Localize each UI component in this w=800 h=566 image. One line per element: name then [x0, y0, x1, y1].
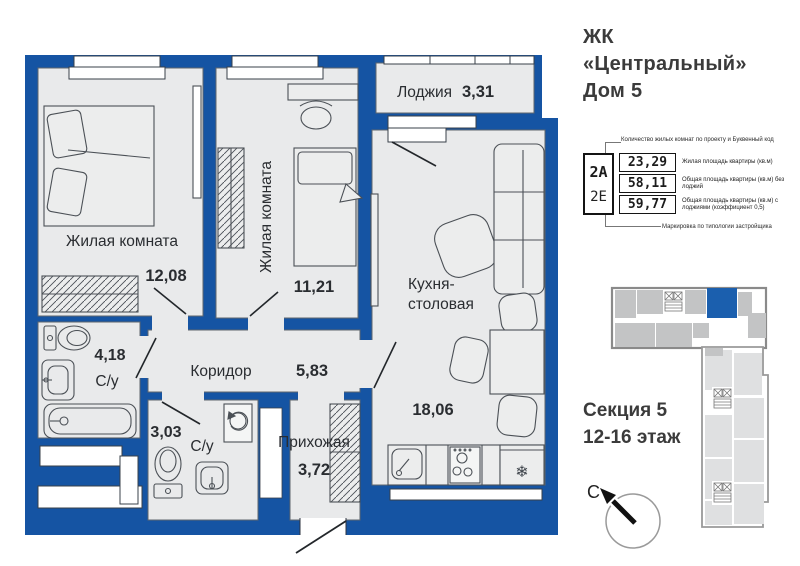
- room-label-bath1-name: С/у: [95, 373, 119, 390]
- double-bed-icon: [44, 106, 154, 226]
- wardrobe-icon: [330, 404, 360, 502]
- title-line-1: ЖК: [583, 24, 795, 51]
- apartment-code-box: 2А 2Е: [583, 153, 614, 215]
- elevator-stairs-icon: [712, 387, 734, 411]
- stove-icon: [450, 447, 480, 483]
- tv-icon: [371, 194, 378, 306]
- window-icon: [74, 56, 160, 67]
- north-arrow-icon: [600, 488, 635, 523]
- apartment-code-secondary: 2Е: [590, 189, 607, 205]
- room-label-hallway-area: 3,72: [298, 461, 330, 479]
- highlighted-apartment: [707, 288, 737, 318]
- chair-icon: [496, 394, 538, 438]
- fridge-icon: ❄: [500, 445, 544, 485]
- elevator-stairs-icon: [712, 481, 734, 505]
- compass: С: [583, 476, 673, 561]
- living-area-value: 23,29: [619, 153, 676, 172]
- washing-machine-icon: [224, 404, 252, 442]
- room-label-bedroom1-name: Жилая комната: [66, 233, 178, 250]
- title-line-3: Дом 5: [583, 78, 795, 105]
- room-label-kitchen-area: 18,06: [412, 401, 453, 419]
- room-label-hallway-name: Прихожая: [278, 434, 350, 451]
- project-title: ЖК «Центральный» Дом 5: [583, 24, 795, 105]
- window-icon: [390, 489, 542, 500]
- spec-annotation-bottom: Маркировка по типологии застройщика: [662, 224, 772, 231]
- balcony-door-icon: [388, 128, 446, 142]
- room-label-bath1-area: 4,18: [94, 347, 125, 364]
- room-label-bedroom2-area: 11,21: [294, 278, 334, 296]
- duct-shaft: [260, 408, 282, 498]
- room-label-bedroom2-name: Жилая комната: [258, 161, 275, 273]
- chair-icon: [498, 292, 539, 335]
- compass-north-label: С: [587, 482, 600, 502]
- apartment-floor-plan: ❄: [0, 0, 575, 566]
- window-icon: [69, 67, 165, 79]
- window-icon: [232, 56, 318, 67]
- room-label-bedroom1-area: 12,08: [145, 267, 186, 285]
- section-line-2: 12-16 этаж: [583, 424, 680, 451]
- wardrobe-icon: [218, 148, 244, 248]
- spec-connector-bottom: [605, 215, 661, 227]
- section-line-1: Секция 5: [583, 397, 680, 424]
- sofa-icon: [494, 144, 544, 294]
- section-lower-unit: [705, 348, 723, 356]
- room-label-kitchen-name-1: Кухня-: [408, 276, 455, 293]
- spec-annotation-top: Количество жилых комнат по проекту и Бук…: [621, 137, 774, 144]
- title-line-2: «Центральный»: [583, 51, 795, 78]
- spec-connector-top: [605, 142, 621, 153]
- room-label-bath2-name: С/у: [190, 438, 214, 455]
- loggia-glazing-icon: [384, 56, 534, 64]
- room-label-corridor-area: 5,83: [296, 362, 328, 380]
- room-corridor: [148, 330, 360, 392]
- window-icon: [40, 446, 122, 466]
- entrance-door-icon: [296, 518, 346, 553]
- room-label-loggia-name: Лоджия: [397, 84, 452, 101]
- balcony-door-icon: [388, 116, 476, 128]
- section-info: Секция 5 12-16 этаж: [583, 397, 680, 451]
- apartment-spec-card: Количество жилых комнат по проекту и Бук…: [583, 137, 796, 245]
- window-icon: [227, 67, 323, 79]
- window-icon: [120, 456, 138, 504]
- page: ❄: [0, 0, 800, 566]
- total-area-value: 58,11: [619, 174, 676, 193]
- wardrobe-icon: [42, 276, 138, 312]
- room-label-corridor-name: Коридор: [190, 363, 251, 380]
- single-bed-icon: [294, 148, 362, 266]
- total-area-with-loggia-label: Общая площадь квартиры (кв.м) с лоджиями…: [682, 195, 796, 214]
- apartment-code-primary: 2А: [589, 163, 607, 181]
- room-label-bath2-area: 3,03: [150, 424, 181, 441]
- dining-table-icon: [490, 330, 544, 394]
- total-area-label: Общая площадь квартиры (кв.м) без лоджий: [682, 174, 796, 193]
- panel-icon: [193, 86, 201, 198]
- living-area-label: Жилая площадь квартиры (кв.м): [682, 153, 796, 172]
- room-label-loggia-area: 3,31: [462, 83, 494, 101]
- total-area-with-loggia-value: 59,77: [619, 195, 676, 214]
- svg-text:❄: ❄: [515, 464, 528, 481]
- room-label-kitchen-name-2: столовая: [408, 296, 474, 313]
